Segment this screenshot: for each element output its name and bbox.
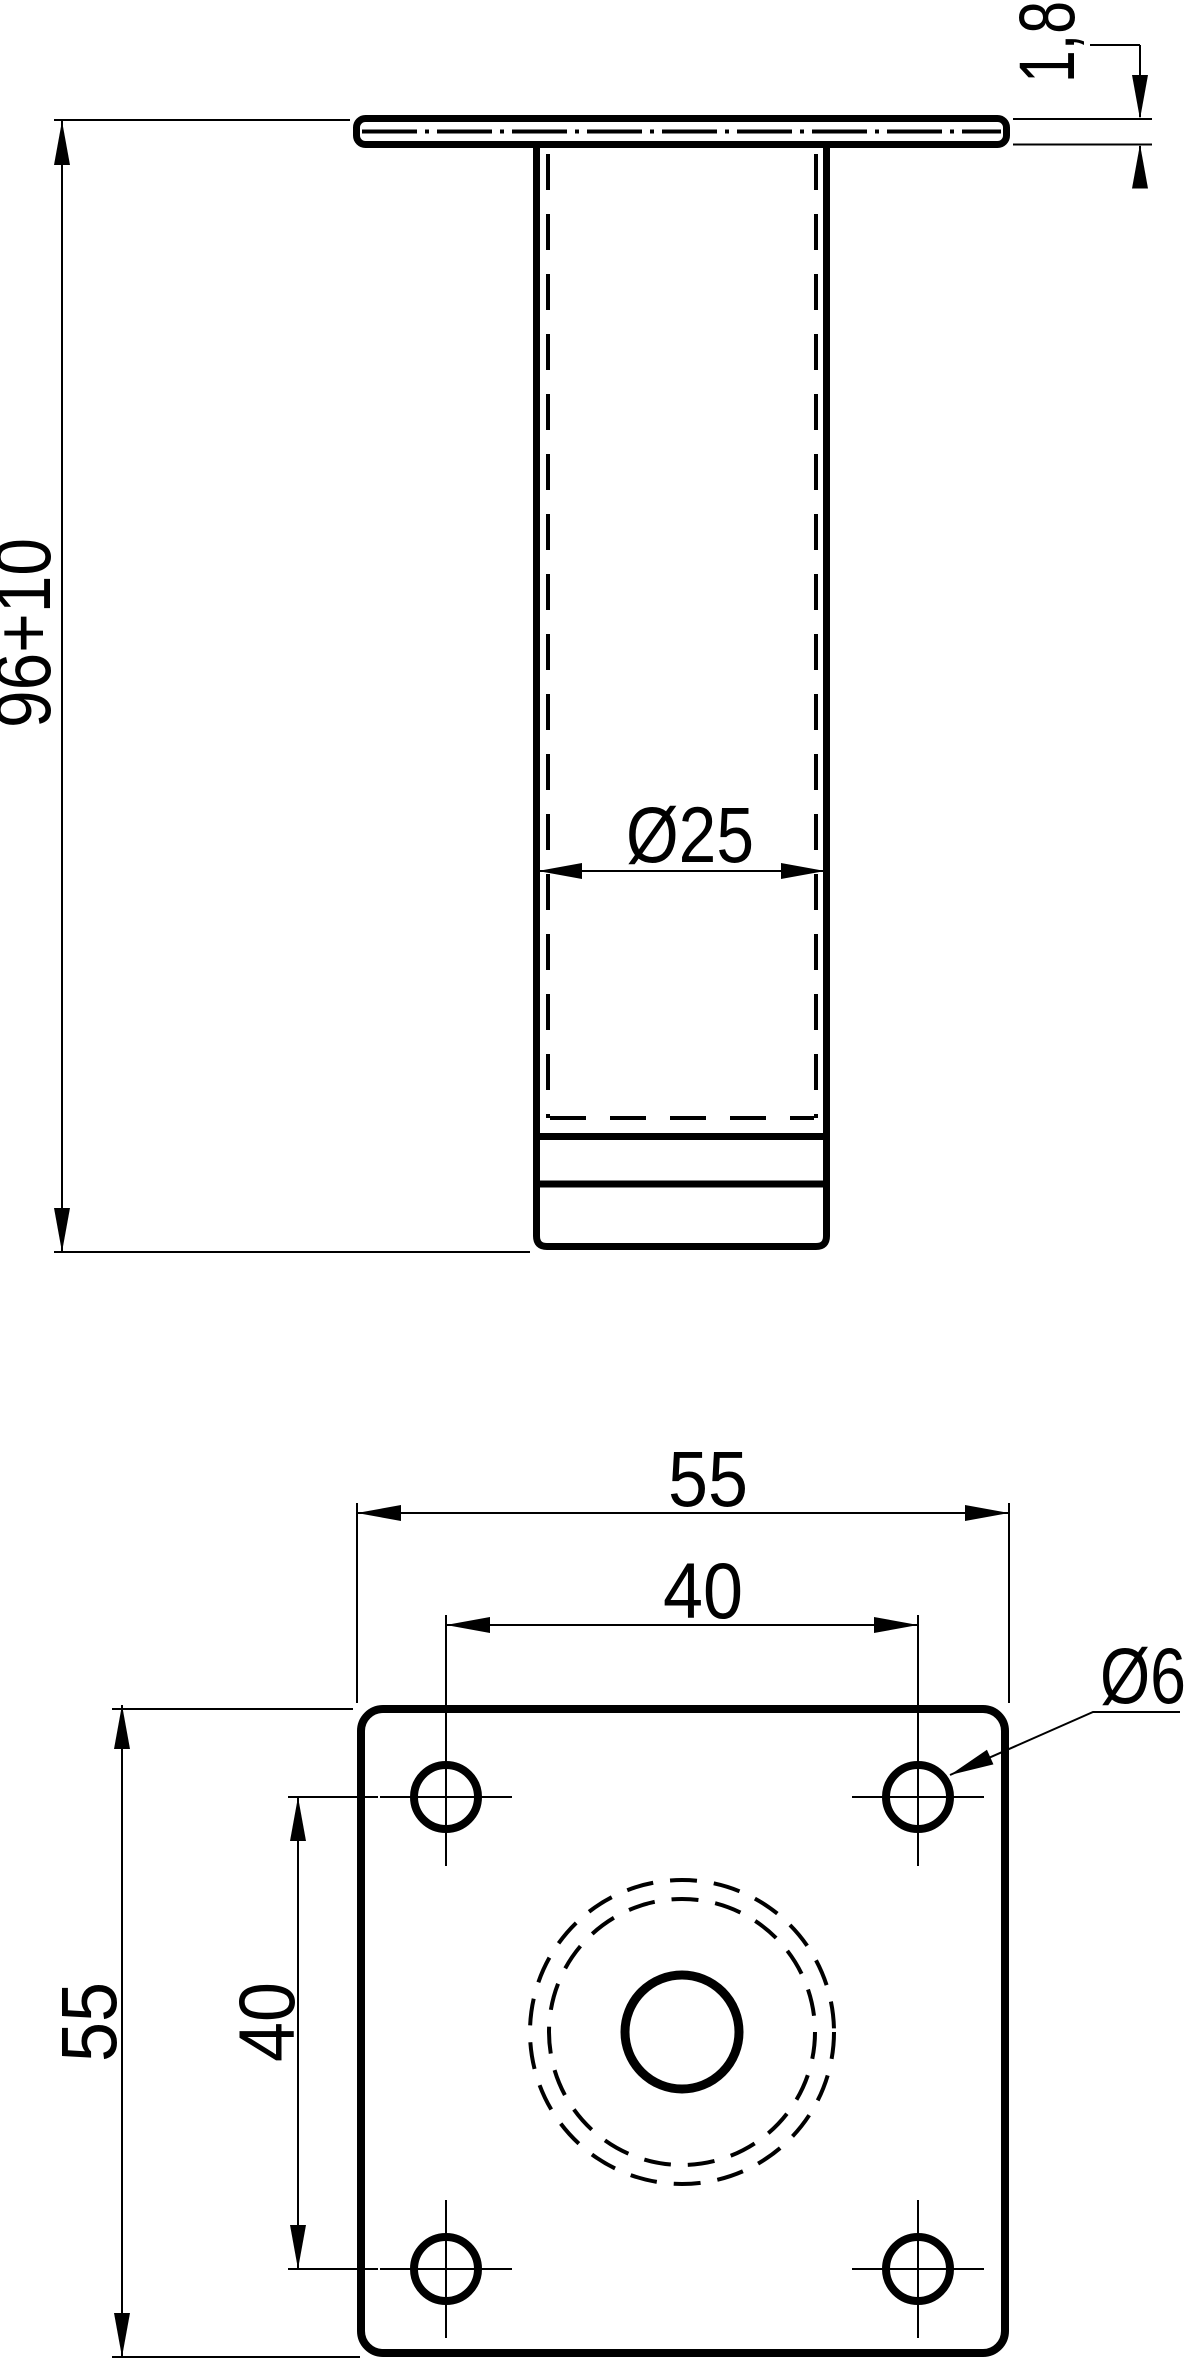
plan-tube-hidden-outer (530, 1880, 834, 2184)
plan-tube-hidden-inner (549, 1899, 815, 2165)
arrowhead (446, 1617, 490, 1633)
plan-view: 55 40 55 40 Ø6 (44, 1434, 1185, 2357)
arrowhead (114, 2313, 130, 2357)
arrowhead (54, 1208, 70, 1252)
arrowhead (1132, 145, 1148, 189)
dim-text-plate-width: 55 (668, 1434, 748, 1523)
dim-text-height: 96+10 (0, 538, 67, 728)
arrowhead (781, 863, 825, 879)
arrowhead (1132, 75, 1148, 119)
plan-hole-bottom-left (380, 2200, 512, 2338)
arrowhead (290, 2225, 306, 2269)
dim-text-hole-pitch-x: 40 (663, 1546, 743, 1635)
plan-hole-top-left (380, 1728, 512, 1866)
arrowhead (54, 121, 70, 165)
front-view: Ø25 96+10 1,8 (0, 1, 1152, 1252)
arrowhead (874, 1617, 918, 1633)
dim-text-hole-diameter: Ø6 (1100, 1631, 1185, 1720)
dim-text-tube-diameter: Ø25 (626, 790, 754, 879)
front-leg-outline (537, 148, 827, 1247)
plan-center-bore (625, 1975, 739, 2089)
arrowhead (357, 1505, 401, 1521)
drawing-canvas: Ø25 96+10 1,8 (0, 0, 1185, 2362)
arrowhead (114, 1705, 130, 1749)
arrowhead (538, 863, 582, 879)
technical-drawing-sheet: Ø25 96+10 1,8 (0, 0, 1185, 2362)
dim-text-hole-pitch-y: 40 (222, 1982, 311, 2062)
plan-plate-outline (361, 1709, 1005, 2353)
plan-hole-top-right (852, 1728, 984, 1866)
dim-text-plate-depth: 55 (44, 1982, 133, 2062)
arrowhead (965, 1505, 1009, 1521)
arrowhead (290, 1797, 306, 1841)
arrowhead (947, 1750, 994, 1783)
plan-hole-bottom-right (852, 2200, 984, 2338)
dim-text-thickness: 1,8 (1002, 1, 1091, 83)
